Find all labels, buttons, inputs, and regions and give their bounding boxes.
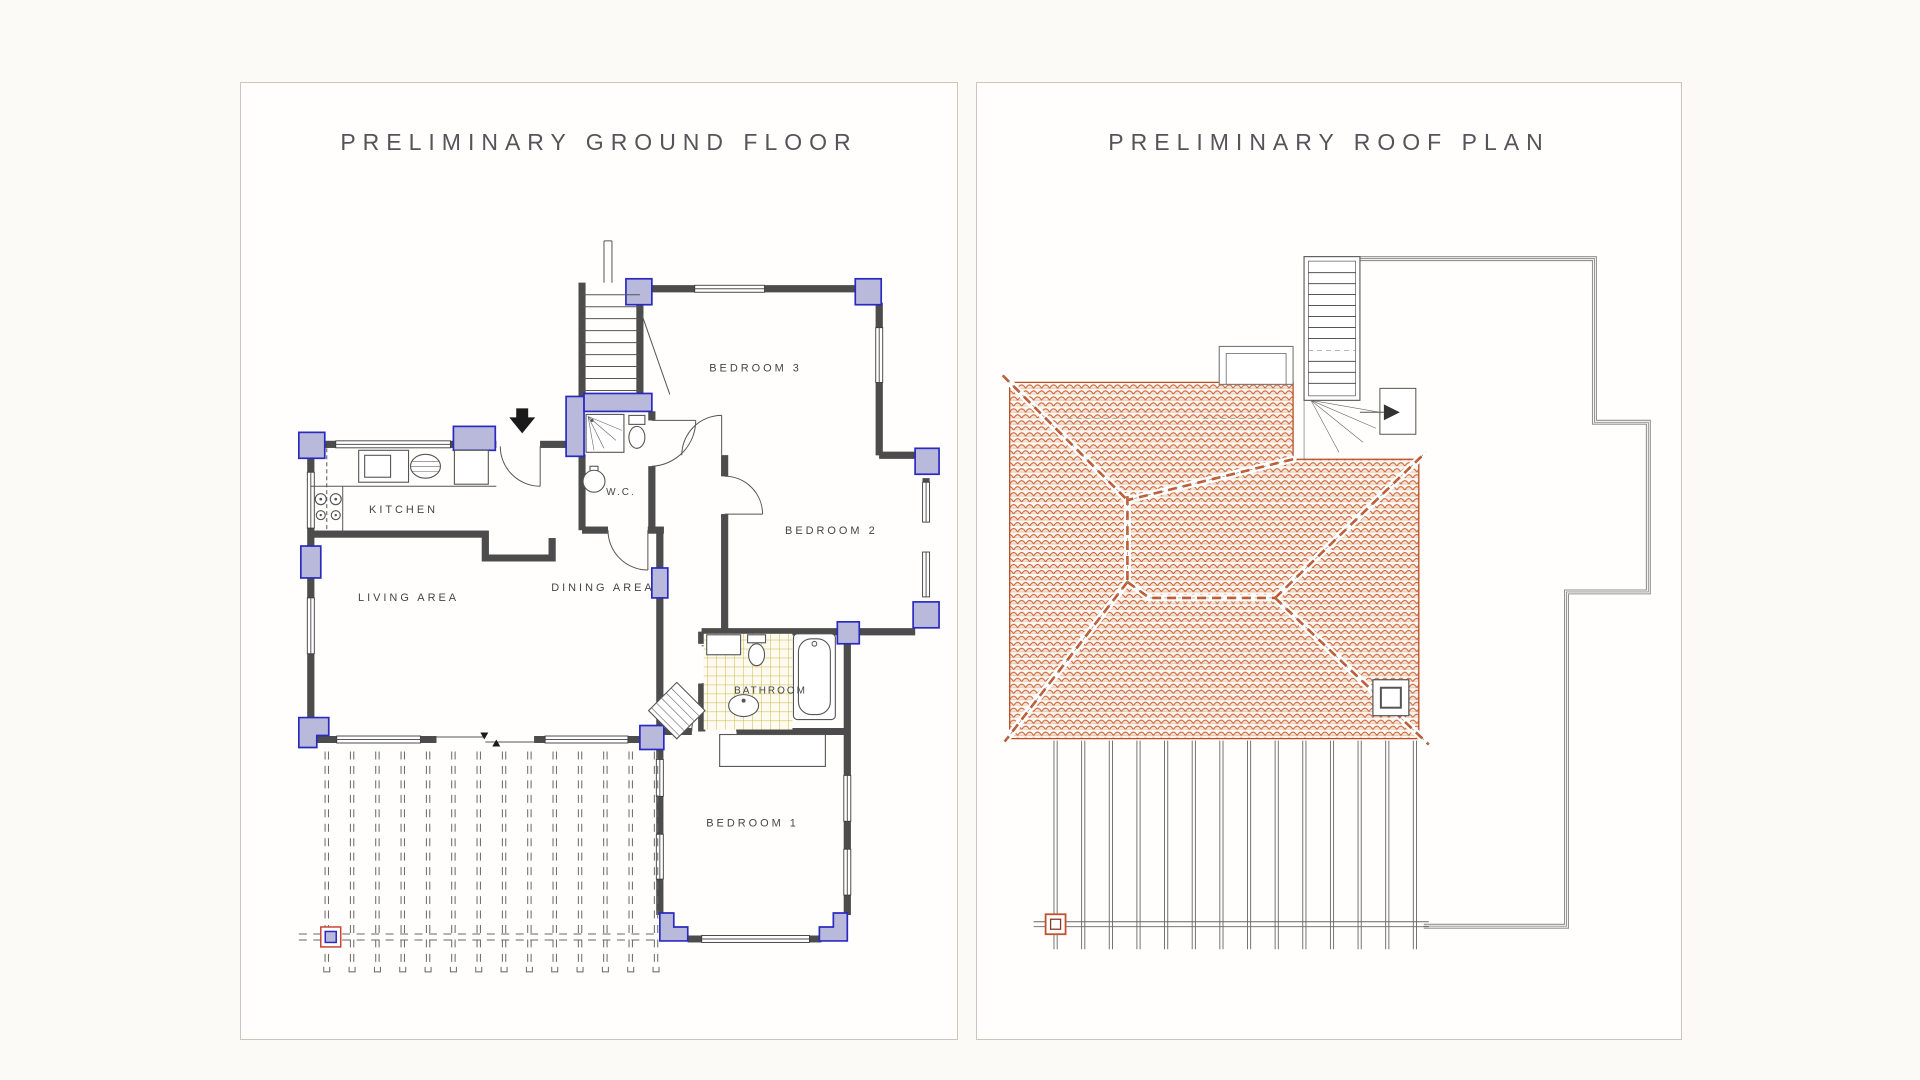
entrance-arrow-icon <box>509 408 535 433</box>
pergola <box>299 751 660 971</box>
label-living-area: LIVING AREA <box>358 592 459 604</box>
label-bedroom1: BEDROOM 1 <box>706 817 799 829</box>
roof-tiles <box>1010 382 1419 738</box>
column-marker <box>1046 914 1066 934</box>
label-bedroom2: BEDROOM 2 <box>785 525 878 537</box>
roof-plan-panel: PRELIMINARY ROOF PLAN <box>976 82 1682 1040</box>
chimney <box>1373 680 1409 716</box>
label-bathroom: BATHROOM <box>734 686 807 697</box>
wc-fixtures <box>583 414 645 492</box>
ground-floor-drawing: KITCHEN LIVING AREA DINING AREA W.C. BED… <box>241 83 957 1039</box>
pergola <box>1034 741 1429 950</box>
kitchen-fixtures <box>311 448 496 534</box>
bathroom-fixtures <box>704 634 836 767</box>
column-marker <box>321 927 341 947</box>
roof-plan-drawing <box>977 83 1681 1039</box>
staircase <box>582 241 670 395</box>
walls <box>311 283 926 939</box>
label-kitchen: KITCHEN <box>369 504 438 516</box>
label-bedroom3: BEDROOM 3 <box>709 363 802 375</box>
entry-canopy <box>1219 346 1293 384</box>
label-dining-area: DINING AREA <box>551 582 655 594</box>
stairwell <box>1304 257 1416 460</box>
ground-floor-panel: PRELIMINARY GROUND FLOOR <box>240 82 958 1040</box>
label-wc: W.C. <box>606 487 636 498</box>
